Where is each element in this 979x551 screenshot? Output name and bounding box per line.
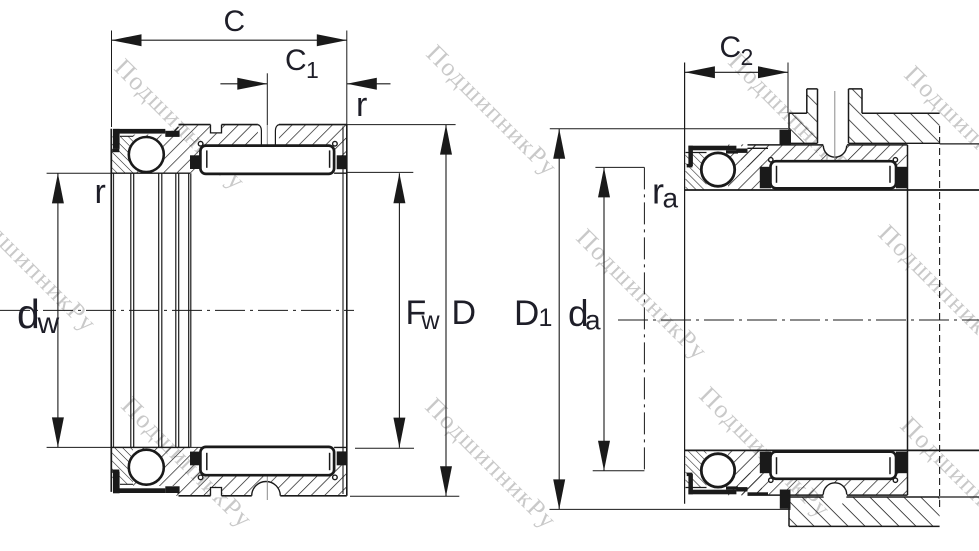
svg-text:D: D [514, 294, 539, 333]
svg-text:C: C [224, 5, 246, 38]
svg-text:r: r [356, 86, 367, 124]
svg-text:1: 1 [539, 304, 553, 332]
svg-text:w: w [421, 307, 441, 335]
svg-text:ПодшипникРу: ПодшипникРу [873, 219, 979, 362]
svg-text:C: C [285, 44, 307, 77]
svg-text:ПодшипникРу: ПодшипникРу [571, 223, 714, 366]
svg-text:1: 1 [306, 57, 319, 83]
svg-text:a: a [585, 305, 601, 336]
svg-text:D: D [452, 294, 477, 332]
svg-text:w: w [37, 307, 60, 340]
svg-text:ПодшипникРу: ПодшипникРу [420, 392, 563, 535]
svg-text:2: 2 [741, 44, 754, 70]
svg-text:C: C [720, 31, 742, 64]
svg-text:d: d [17, 291, 40, 337]
svg-text:ПодшипникРу: ПодшипникРу [421, 39, 564, 182]
svg-text:r: r [95, 173, 106, 211]
svg-text:a: a [663, 183, 679, 214]
